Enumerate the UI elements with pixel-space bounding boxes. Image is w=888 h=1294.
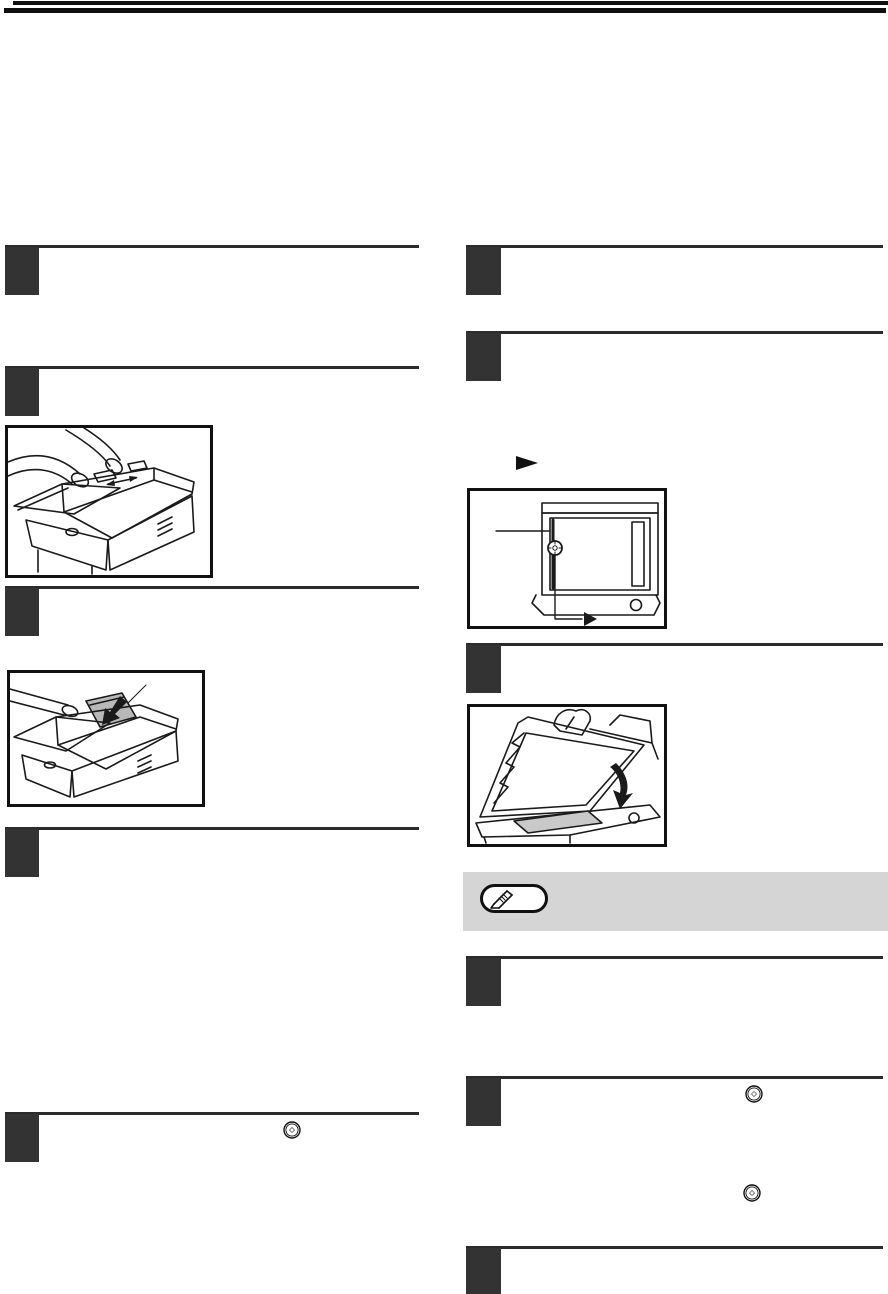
arrow-right-icon <box>516 456 538 470</box>
manual-page <box>0 0 888 1294</box>
closing-document-cover-illustration <box>467 704 667 847</box>
start-button-icon <box>743 1184 761 1202</box>
original-into-feeder-illustration <box>7 670 205 807</box>
step-rule <box>466 1246 883 1249</box>
step-rule <box>466 1076 883 1079</box>
step-number-block <box>5 588 39 636</box>
pencil-icon <box>483 887 545 910</box>
step-rule <box>5 1112 419 1115</box>
step-rule <box>466 956 883 959</box>
start-button-icon <box>283 1121 301 1139</box>
document-glass-top-view-illustration <box>467 488 667 629</box>
header-rule-bottom <box>4 8 886 13</box>
step-rule <box>5 586 419 589</box>
copier-line-art <box>470 491 664 626</box>
step-number-block <box>466 1078 501 1126</box>
step-number-block <box>5 1114 39 1162</box>
step-rule <box>466 643 883 646</box>
copier-line-art <box>8 428 210 575</box>
step-number-block <box>5 247 39 295</box>
note-box <box>463 872 888 931</box>
note-label-pill <box>480 884 548 913</box>
step-number-block <box>466 645 501 693</box>
step-number-block <box>5 829 39 877</box>
step-rule <box>466 331 883 334</box>
start-button-icon <box>745 1085 763 1103</box>
step-rule <box>5 366 419 369</box>
step-rule <box>466 245 883 248</box>
step-rule <box>5 827 419 830</box>
step-number-block <box>466 1248 501 1294</box>
copier-line-art <box>470 707 664 844</box>
step-rule <box>5 245 419 248</box>
adf-guide-adjustment-illustration <box>5 425 213 578</box>
header-rule-top <box>13 1 888 5</box>
step-number-block <box>466 247 501 295</box>
step-number-block <box>5 368 39 416</box>
copier-line-art <box>10 673 202 804</box>
step-number-block <box>466 333 501 381</box>
step-number-block <box>466 958 501 1006</box>
